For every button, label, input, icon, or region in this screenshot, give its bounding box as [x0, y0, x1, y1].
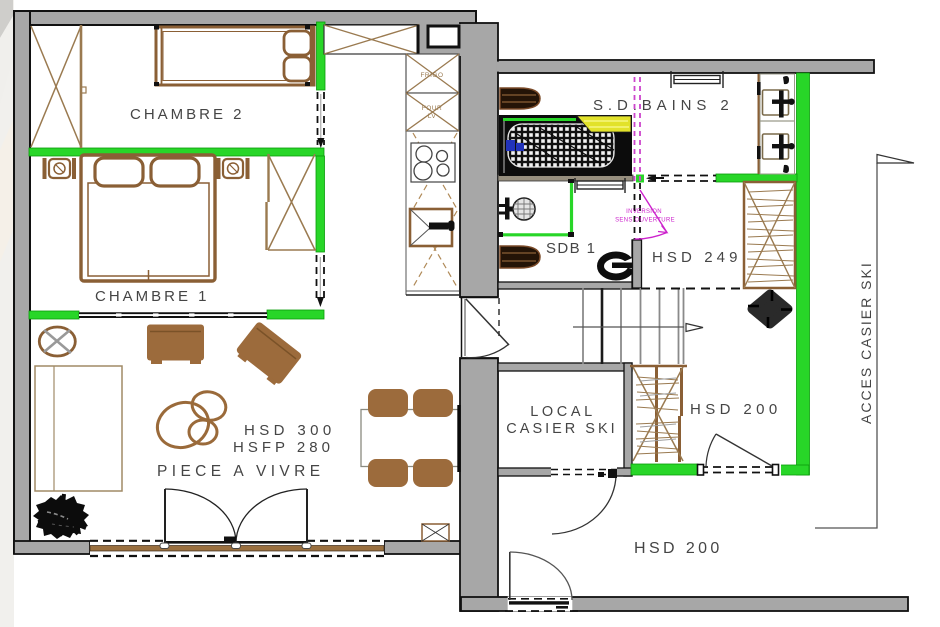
svg-text:HSD 249: HSD 249: [652, 249, 742, 266]
svg-text:INVERSION: INVERSION: [626, 209, 662, 215]
svg-text:ACCES CASIER SKI: ACCES CASIER SKI: [858, 261, 874, 424]
svg-text:FRIGO: FRIGO: [420, 72, 443, 79]
svg-text:SENS OUVERTURE: SENS OUVERTURE: [615, 218, 675, 224]
svg-text:HSFP 280: HSFP 280: [233, 439, 334, 456]
svg-text:SDB 1: SDB 1: [546, 240, 596, 257]
svg-text:CASIER SKI: CASIER SKI: [506, 421, 617, 437]
svg-text:HSD 300: HSD 300: [244, 422, 336, 439]
svg-text:CHAMBRE 2: CHAMBRE 2: [130, 106, 245, 123]
svg-text:HSD 200: HSD 200: [634, 540, 723, 557]
svg-text:S.D.BAINS 2: S.D.BAINS 2: [593, 97, 734, 114]
svg-text:HSD 200: HSD 200: [690, 401, 782, 418]
svg-text:FOUR: FOUR: [422, 105, 442, 112]
svg-text:LV: LV: [428, 113, 437, 120]
svg-text:PIECE A VIVRE: PIECE A VIVRE: [157, 463, 324, 480]
svg-text:CHAMBRE 1: CHAMBRE 1: [95, 288, 210, 305]
svg-text:LOCAL: LOCAL: [530, 404, 596, 420]
